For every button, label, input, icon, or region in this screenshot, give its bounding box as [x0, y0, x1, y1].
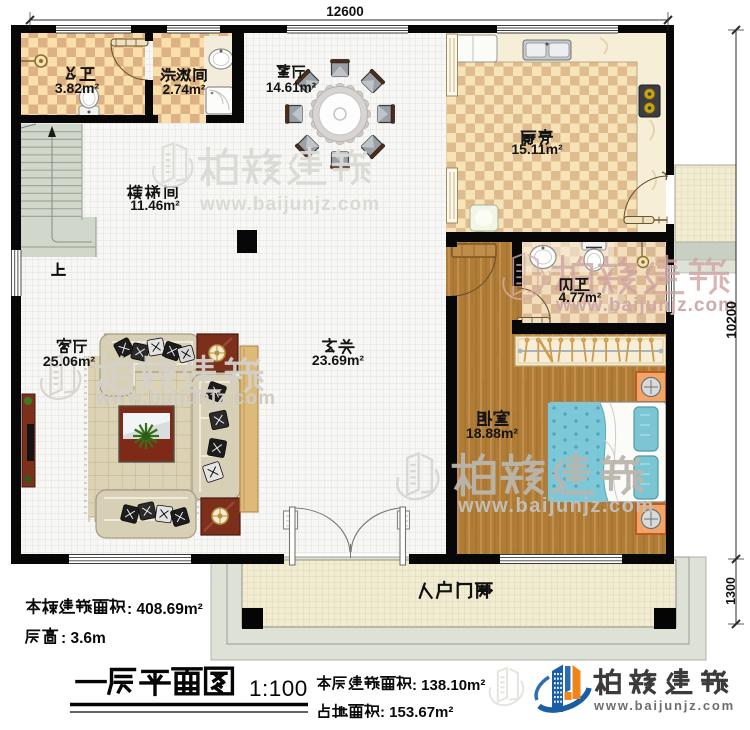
svg-text:: 153.67m²: : 153.67m² [380, 704, 453, 721]
svg-text:: 408.69m²: : 408.69m² [127, 601, 203, 618]
svg-text:1300: 1300 [724, 577, 738, 605]
svg-text:www.baijunjz.com: www.baijunjz.com [593, 698, 735, 713]
svg-text:2.74m²: 2.74m² [163, 82, 206, 97]
svg-text:12600: 12600 [326, 4, 364, 19]
svg-text:4.77m²: 4.77m² [559, 290, 602, 305]
svg-text:www.baijunjz.com: www.baijunjz.com [95, 388, 276, 409]
svg-text:23.69m²: 23.69m² [312, 352, 364, 368]
svg-text:11.46m²: 11.46m² [130, 198, 180, 213]
svg-text:14.61m²: 14.61m² [266, 80, 317, 95]
svg-text:www.baijunjz.com: www.baijunjz.com [199, 194, 380, 215]
svg-text:3.82m²: 3.82m² [55, 80, 100, 96]
svg-text:: 138.10m²: : 138.10m² [412, 677, 485, 694]
svg-text:18.88m²: 18.88m² [466, 425, 518, 441]
svg-text:www.baijunjz.com: www.baijunjz.com [457, 495, 655, 517]
svg-text:15.11m²: 15.11m² [511, 141, 563, 157]
svg-text:: 3.6m: : 3.6m [61, 630, 106, 647]
svg-text:25.06m²: 25.06m² [43, 353, 95, 369]
svg-text:10200: 10200 [724, 301, 739, 339]
svg-text:1:100: 1:100 [249, 676, 308, 701]
